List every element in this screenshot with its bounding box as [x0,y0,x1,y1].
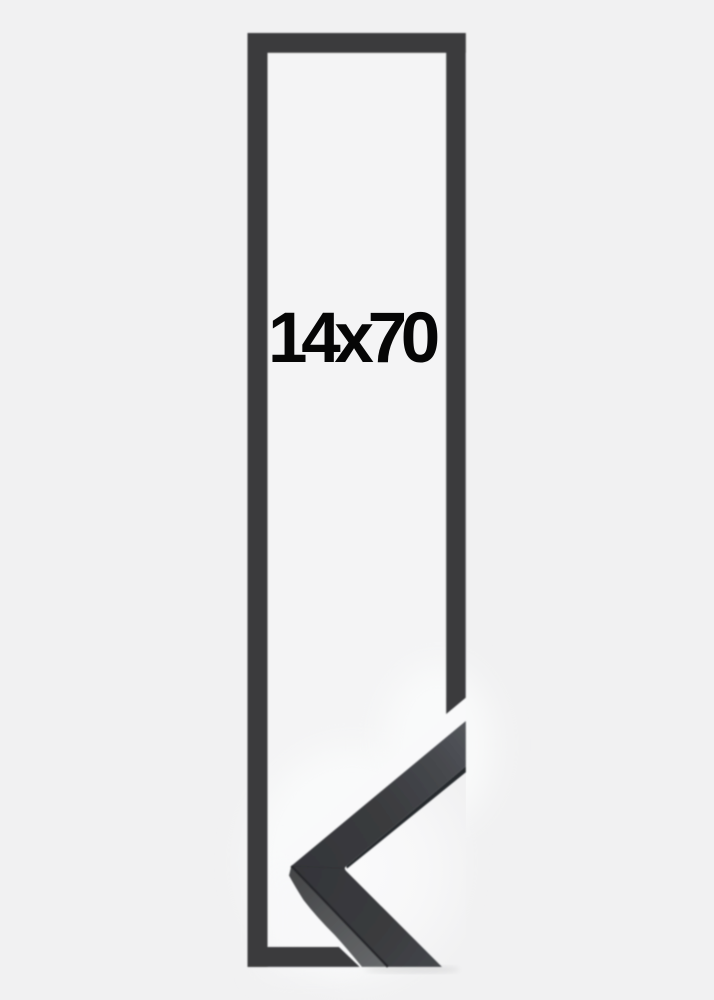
svg-text:14x70: 14x70 [268,299,438,378]
